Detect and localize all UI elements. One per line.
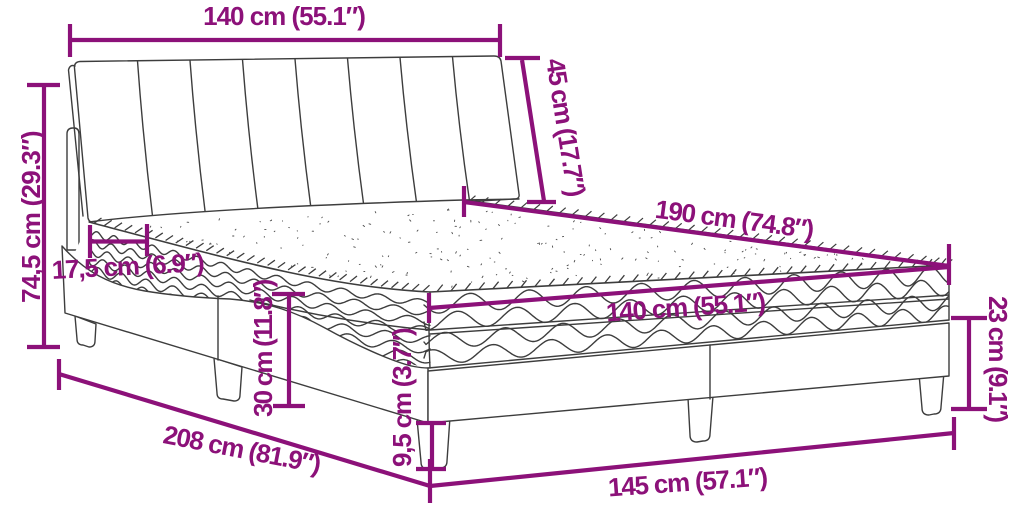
svg-text:23 cm (9.1″): 23 cm (9.1″) — [983, 296, 1013, 422]
svg-text:140 cm (55.1″): 140 cm (55.1″) — [203, 1, 365, 31]
svg-text:30 cm (11.8″): 30 cm (11.8″) — [248, 279, 278, 417]
svg-text:9,5 cm (3.7″): 9,5 cm (3.7″) — [387, 328, 417, 467]
svg-text:74,5 cm (29.3″): 74,5 cm (29.3″) — [16, 131, 46, 303]
